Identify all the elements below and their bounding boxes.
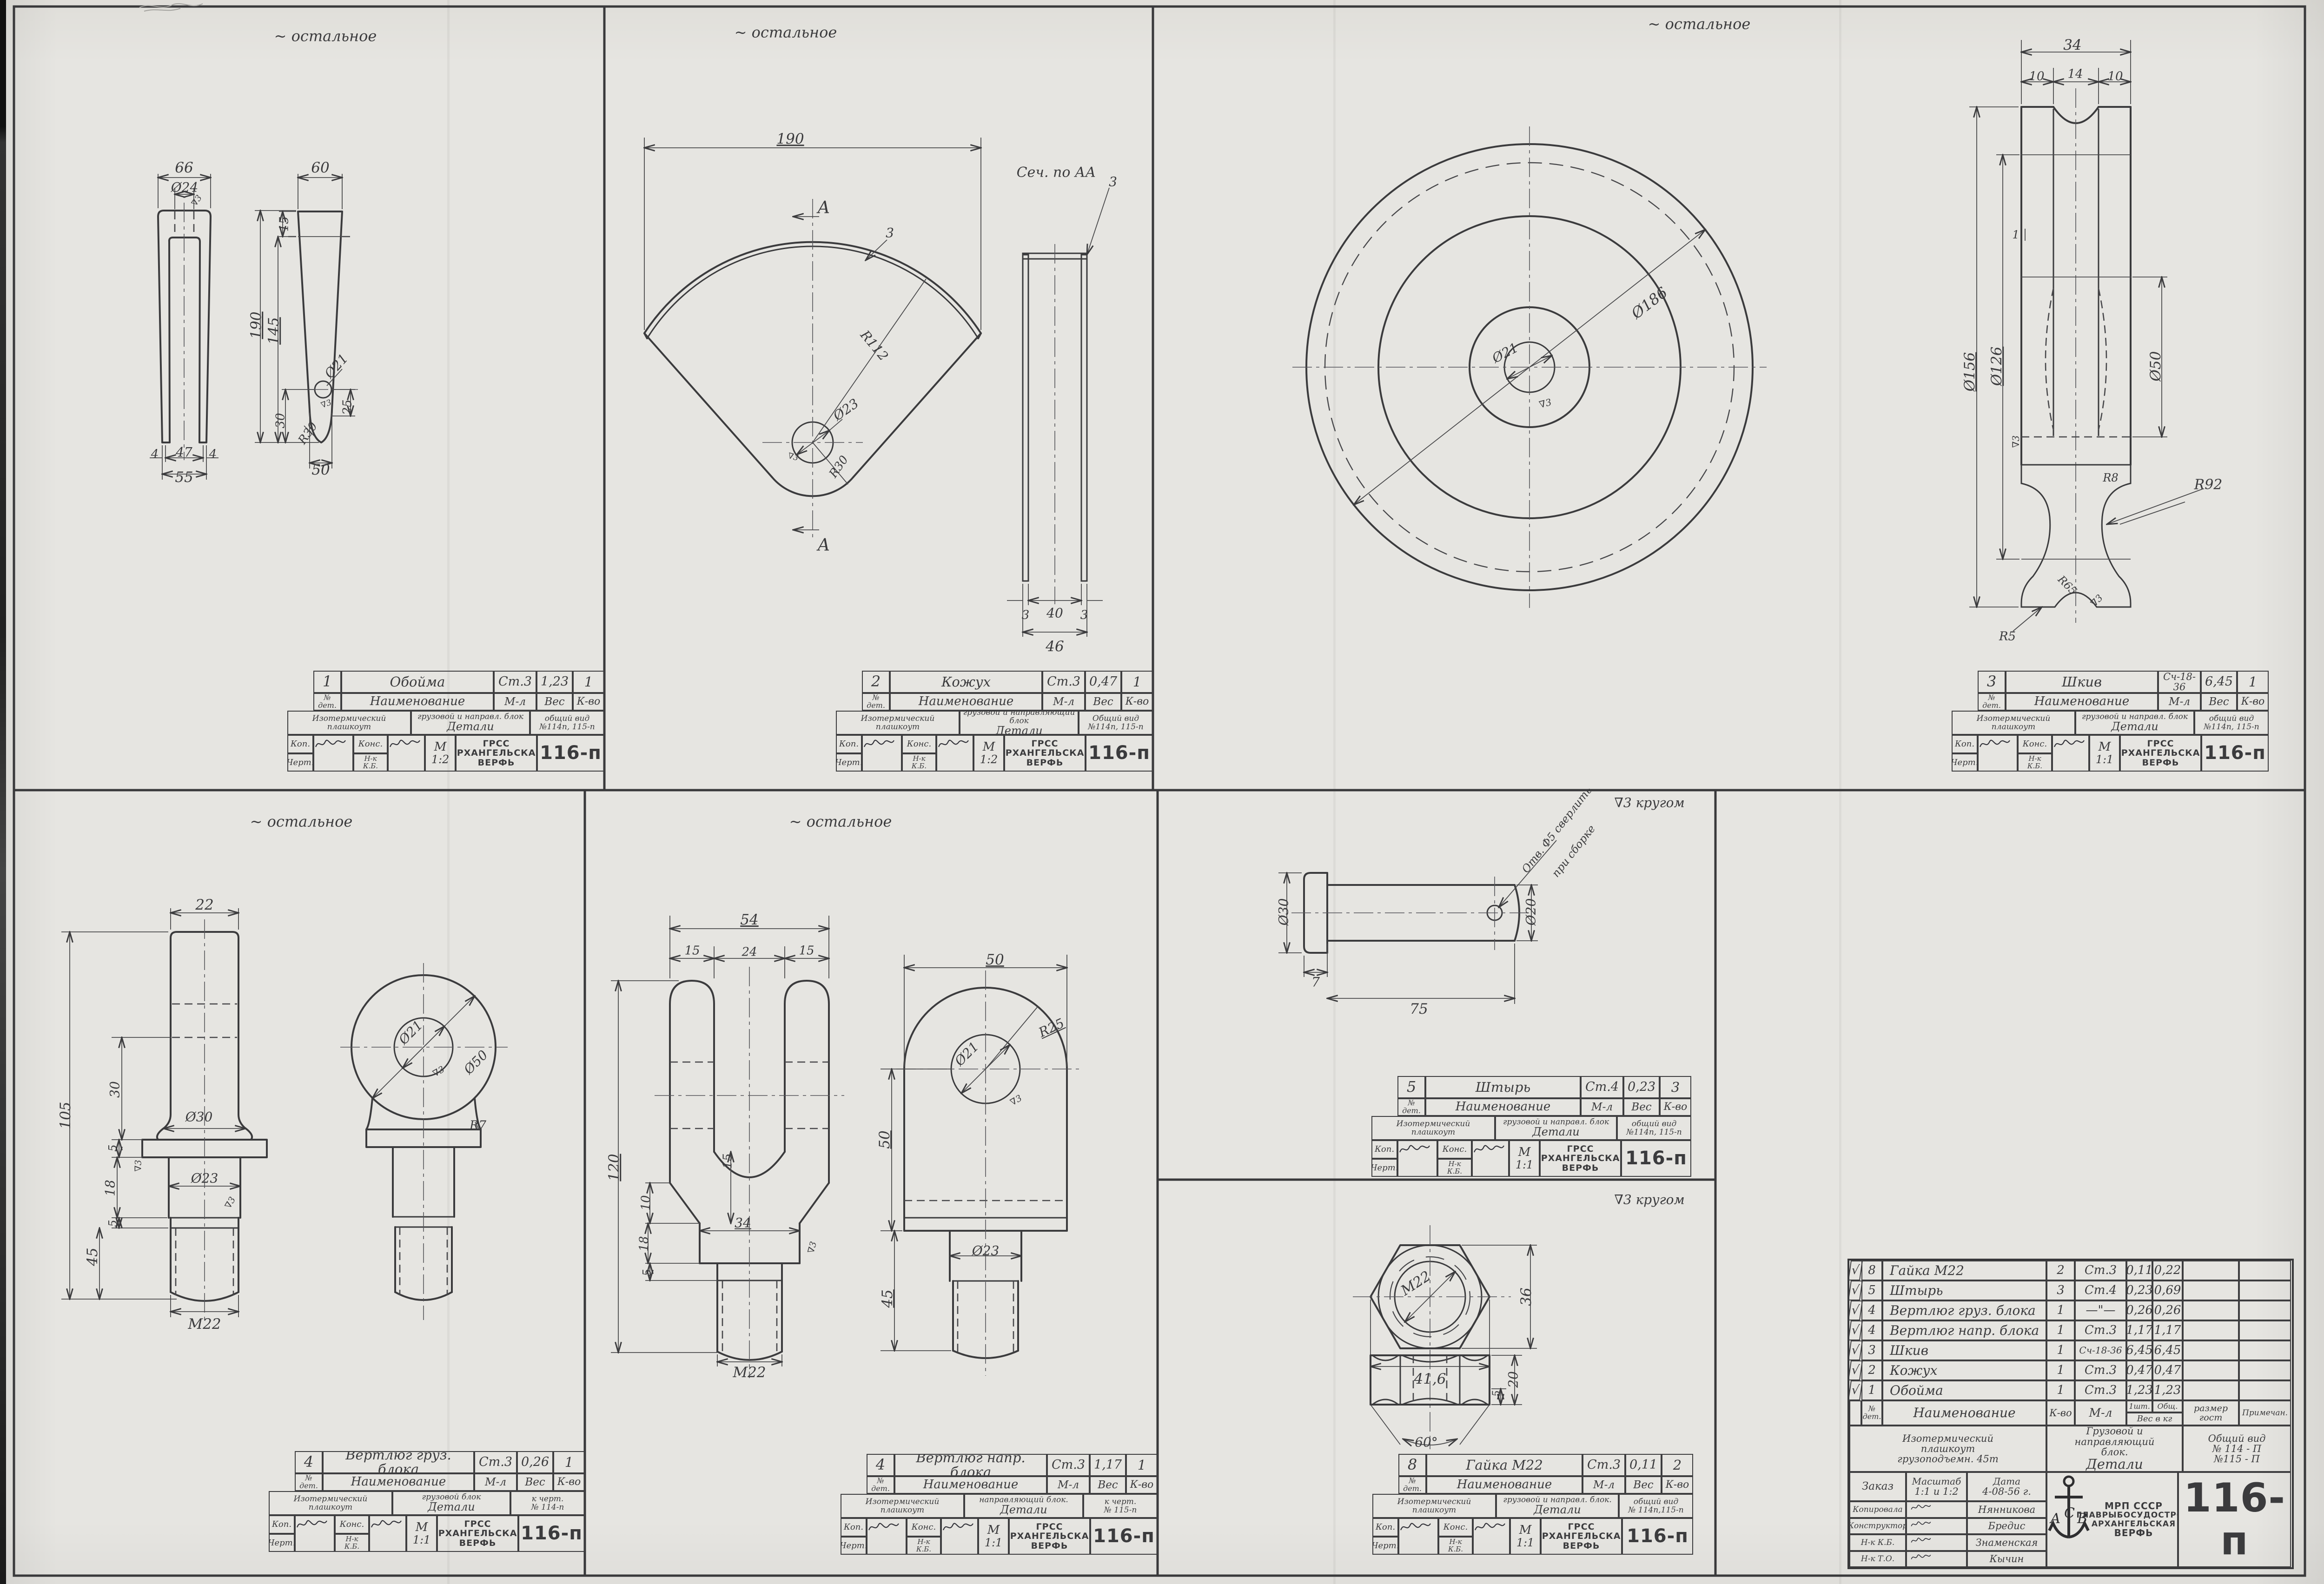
- header-gost: размер гост: [2183, 1400, 2239, 1426]
- col-header-name: Наименование: [890, 693, 1042, 711]
- part-name: Обойма: [341, 671, 494, 693]
- dim-label: 34: [2063, 38, 2081, 53]
- col-header-material: М-л: [474, 1473, 517, 1491]
- assembly-name: грузовой и направл. блокДетали: [2075, 711, 2194, 735]
- org-line: ВЕРФЬ: [478, 758, 515, 767]
- dim-label: 45: [881, 1289, 895, 1307]
- part-name: Штырь: [1425, 1076, 1581, 1098]
- reference-drawing: к черт. № 115-п: [1083, 1494, 1158, 1518]
- scale-cell: Масштаб1:1 и 1:2: [1906, 1472, 1967, 1501]
- row-weight-one: 6,45: [2126, 1340, 2152, 1360]
- project-line: грузоподъемн. 45т: [1897, 1454, 1998, 1464]
- kop-label: Коп.: [1372, 1518, 1398, 1537]
- dim-label: 30: [275, 413, 287, 428]
- scale-letter: М: [983, 741, 995, 754]
- col-header-weight: Вес: [2201, 693, 2237, 711]
- quantity: 1: [1126, 1454, 1158, 1476]
- col-header-num: № дет.: [862, 693, 890, 711]
- part-number: 3: [1978, 671, 2006, 693]
- row-gost: [2183, 1320, 2239, 1340]
- scale-value: 1:1: [1516, 1159, 1534, 1171]
- signature: [937, 736, 970, 752]
- dim-label: 18: [638, 1236, 651, 1251]
- nk-kb-label: Н-к К.Б.: [907, 1537, 941, 1555]
- scale-cell: М1:1: [978, 1518, 1009, 1555]
- dim-label: ~ остальное: [735, 25, 837, 40]
- date-cell: Дата4-08-56 г.: [1967, 1472, 2046, 1501]
- col-header-num: № дет.: [1397, 1098, 1425, 1116]
- row-name: Обойма: [1882, 1380, 2046, 1400]
- col-header-weight: Вес: [1623, 1098, 1660, 1116]
- row-weight-one: 1,23: [2126, 1380, 2152, 1400]
- header-weight-total: Общ.: [2152, 1400, 2183, 1412]
- signature: [389, 736, 421, 752]
- part-number: 4: [867, 1454, 894, 1476]
- header-note: Примечан.: [2239, 1400, 2291, 1426]
- row-weight-total: 0,69: [2152, 1280, 2183, 1300]
- dim-label: 1: [2012, 229, 2019, 240]
- nk-kb-label: Н-к К.Б.: [1438, 1537, 1473, 1555]
- dim-label: 7: [1311, 976, 1320, 990]
- dim-label: 10: [2029, 71, 2044, 83]
- shipyard-logo: АСВ: [2046, 1483, 2077, 1557]
- detali-label: Детали: [1000, 1504, 1047, 1516]
- dim-label: ~ остальное: [1648, 17, 1751, 32]
- check-mark: √: [1848, 1360, 1863, 1380]
- part-number: 5: [1397, 1076, 1425, 1098]
- col-header-name: Наименование: [1425, 1098, 1581, 1116]
- dim-label: 3: [1080, 609, 1088, 622]
- signature-cell: [313, 735, 353, 772]
- signature: [1907, 1552, 1935, 1562]
- dim-label: R7: [470, 1120, 486, 1132]
- col-header-qty: К-во: [1121, 693, 1153, 711]
- scale-value: 1:1: [413, 1534, 431, 1546]
- signature: [296, 1516, 328, 1532]
- col-header-qty: К-во: [1662, 1476, 1693, 1494]
- material: Ст.3: [474, 1451, 517, 1473]
- row-qty: 1: [2046, 1360, 2075, 1380]
- title-block-1: 1ОбоймаСт.31,231№ дет.НаименованиеМ-лВес…: [287, 671, 604, 772]
- signature: [1907, 1535, 1935, 1545]
- assembly-name: грузовой и направл. блок.Детали: [1496, 1494, 1619, 1518]
- assembly-line: Грузовой и направляющий: [2047, 1426, 2182, 1447]
- detali-label: Детали: [2086, 1457, 2143, 1472]
- row-num: 4: [1861, 1300, 1882, 1320]
- col-header-name: Наименование: [1426, 1476, 1582, 1494]
- row-weight-total: 0,26: [2152, 1300, 2183, 1320]
- scale-cell: М1:1: [1509, 1140, 1540, 1177]
- dim-label: Сеч. по АА: [1017, 166, 1096, 180]
- scale-letter: М: [434, 741, 447, 754]
- part-number: 1: [313, 671, 341, 693]
- col-header-name: Наименование: [2006, 693, 2158, 711]
- material: Ст.3: [494, 671, 536, 693]
- row-material: Ст.3: [2075, 1261, 2126, 1280]
- check-mark: √: [1848, 1340, 1863, 1360]
- assembly-line: блок.: [2101, 1447, 2128, 1457]
- header-name: Наименование: [1882, 1400, 2046, 1426]
- sheet-number: 116-п: [1622, 1518, 1693, 1555]
- org-cell: ГРССАРХАНГЕЛЬСКАЯВЕРФЬ: [437, 1515, 518, 1552]
- signature: [867, 1519, 900, 1535]
- row-gost: [2183, 1300, 2239, 1320]
- person-name: Знаменская: [1967, 1534, 2046, 1551]
- row-qty: 1: [2046, 1380, 2075, 1400]
- kons-label: Конс.: [1438, 1518, 1473, 1537]
- detali-label: Детали: [447, 721, 494, 733]
- kop-label: Коп.: [1952, 735, 1978, 753]
- org-line: АРХАНГЕЛЬСКАЯ: [2120, 748, 2201, 758]
- material: Ст.3: [1047, 1454, 1090, 1476]
- kons-label: Конс.: [1437, 1140, 1472, 1159]
- part-name: Вертлюг напр. блока: [894, 1454, 1047, 1476]
- org-cell: ГРССАРХАНГЕЛЬСКАЯВЕРФЬ: [2120, 735, 2201, 772]
- sheet-number: 116-п: [518, 1515, 585, 1552]
- project-name: Изотермический плашкоут: [841, 1494, 964, 1518]
- project-name: Изотермический плашкоут: [287, 711, 411, 735]
- row-material: Ст.3: [2075, 1380, 2126, 1400]
- col-header-name: Наименование: [894, 1476, 1047, 1494]
- dim-label: 45: [86, 1247, 100, 1266]
- row-note: [2239, 1340, 2291, 1360]
- assembly-line: грузовой и направляющий блок: [960, 711, 1078, 725]
- dim-label: 15: [722, 1153, 735, 1168]
- project-name: Изотермический плашкоут: [1372, 1494, 1496, 1518]
- row-qty: 1: [2046, 1340, 2075, 1360]
- scale-letter: М: [1519, 1524, 1532, 1537]
- weight: 0,26: [517, 1451, 553, 1473]
- dim-label: 15: [799, 945, 814, 957]
- row-weight-one: 1,17: [2126, 1320, 2152, 1340]
- project-name: Изотермический плашкоут: [1952, 711, 2075, 735]
- logo-cell: АСВМРП СССРГЛАВРЫБОСУДОСТРОЙАРХАНГЕЛЬСКА…: [2046, 1472, 2178, 1567]
- detali-label: Детали: [1532, 1126, 1580, 1138]
- assembly-name: направляющий блок.Детали: [964, 1494, 1083, 1518]
- reference-drawing: общий вид №114п, 115-п: [530, 711, 604, 735]
- dim-label: 15: [684, 945, 700, 957]
- row-gost: [2183, 1280, 2239, 1300]
- anchor-icon: АСВ: [2047, 1473, 2090, 1547]
- row-note: [2239, 1261, 2291, 1280]
- scale-cell: М1:2: [973, 735, 1004, 772]
- material: Сч-18-36: [2158, 671, 2201, 693]
- chert-label: Черт.: [287, 753, 313, 772]
- project-line: плашкоут: [1921, 1444, 1975, 1454]
- col-header-qty: К-во: [1660, 1098, 1691, 1116]
- scale-value: 1:1: [1516, 1537, 1535, 1549]
- org-cell: ГРССАРХАНГЕЛЬСКАЯВЕРФЬ: [1009, 1518, 1090, 1555]
- col-header-weight: Вес: [517, 1473, 553, 1491]
- chert-label: Черт.: [841, 1537, 867, 1555]
- dim-label: 41,6: [1414, 1372, 1446, 1387]
- header-check: [1849, 1400, 1861, 1426]
- kop-label: Коп.: [1371, 1140, 1397, 1159]
- date-label: Дата: [1993, 1477, 2020, 1486]
- col-header-name: Наименование: [323, 1473, 474, 1491]
- scale-value: 1:2: [980, 754, 998, 766]
- row-name: Вертлюг груз. блока: [1882, 1300, 2046, 1320]
- signature-cell: [1473, 1518, 1510, 1555]
- dim-label: 18: [104, 1180, 118, 1196]
- dim-label: 50: [878, 1130, 893, 1148]
- signature-cell: [369, 1515, 406, 1552]
- signature: [1979, 736, 2011, 752]
- row-qty: 2: [2046, 1261, 2075, 1280]
- drawing-kozhukh: [644, 138, 1109, 637]
- reference-drawing: общий вид №114п, 115-п: [2194, 711, 2269, 735]
- dim-label: ∇3: [134, 1160, 143, 1171]
- dim-label: А: [817, 537, 830, 554]
- col-header-num: № дет.: [1398, 1476, 1426, 1494]
- weight: 0,47: [1085, 671, 1121, 693]
- signature: [1473, 1141, 1505, 1157]
- part-name: Вертлюг груз. блока: [323, 1451, 474, 1473]
- org-line: ГРСС: [1036, 1522, 1063, 1531]
- col-header-material: М-л: [1581, 1098, 1623, 1116]
- weight: 1,23: [536, 671, 573, 693]
- dim-label: 22: [195, 898, 213, 913]
- dim-label: R8: [2103, 472, 2118, 483]
- quantity: 1: [573, 671, 604, 693]
- part-name: Шкив: [2006, 671, 2158, 693]
- drawing-vertlyug-gruz: [61, 908, 508, 1321]
- kons-label: Конс.: [902, 735, 936, 753]
- reference-drawing: к черт. № 114-п: [510, 1491, 585, 1515]
- project-line: Изотермический: [1902, 1433, 1993, 1444]
- check-mark: √: [1848, 1261, 1863, 1280]
- detali-label: Детали: [1534, 1504, 1581, 1516]
- signature-cell: [388, 735, 425, 772]
- dim-label: 14: [2067, 68, 2083, 81]
- col-header-weight: Вес: [1625, 1476, 1662, 1494]
- person-name: Бредис: [1967, 1518, 2046, 1535]
- dim-label: ∇3 кругом: [1614, 1194, 1684, 1207]
- dim-label: 46: [1046, 640, 1064, 654]
- signature: [1398, 1141, 1431, 1157]
- col-header-num: № дет.: [313, 693, 341, 711]
- org-line: АРХАНГЕЛЬСКАЯ: [456, 748, 537, 758]
- scale-cell: М1:1: [1510, 1518, 1541, 1555]
- row-gost: [2183, 1380, 2239, 1400]
- dim-label: 120: [607, 1154, 622, 1181]
- nk-kb-label: Н-к К.Б.: [353, 753, 388, 772]
- sheet-number: 116-п: [2201, 735, 2269, 772]
- assembly-cell: Грузовой и направляющийблок.Детали: [2046, 1426, 2183, 1472]
- dim-label: R92: [2194, 478, 2223, 493]
- title-block-4: 4Вертлюг груз. блокаСт.30,261№ дет.Наиме…: [269, 1451, 585, 1552]
- project-name: Изотермический плашкоут: [836, 711, 960, 735]
- dim-label: М22: [188, 1317, 221, 1332]
- reference-line: Общий вид: [2208, 1433, 2266, 1444]
- signature-cell: [1906, 1551, 1967, 1568]
- reference-drawing: общий вид № 114п,115-п: [1619, 1494, 1693, 1518]
- header-material: М-л: [2075, 1400, 2126, 1426]
- row-qty: 1: [2046, 1300, 2075, 1320]
- drawing-gaika: [1353, 1225, 1537, 1449]
- org-line: ВЕРФЬ: [1026, 758, 1064, 767]
- row-num: 4: [1861, 1320, 1882, 1340]
- nk-kb-label: Н-к К.Б.: [335, 1534, 369, 1552]
- reference-cell: Общий вид№ 114 - П№115 - П: [2183, 1426, 2291, 1472]
- row-material: —"—: [2075, 1300, 2126, 1320]
- dim-label: 50: [311, 463, 330, 478]
- row-num: 3: [1861, 1340, 1882, 1360]
- row-weight-total: 1,17: [2152, 1320, 2183, 1340]
- signature: [1399, 1519, 1432, 1535]
- row-weight-one: 0,47: [2126, 1360, 2152, 1380]
- signature-cell: [936, 735, 973, 772]
- dim-label: 3: [1022, 609, 1030, 622]
- signature-cell: [1978, 735, 2018, 772]
- org-line: ВЕРФЬ: [1031, 1541, 1068, 1551]
- assembly-name: грузовой и направл. блокДетали: [1495, 1116, 1617, 1140]
- header-qty: К-во: [2046, 1400, 2075, 1426]
- row-weight-one: 0,23: [2126, 1280, 2152, 1300]
- signature-cell: [941, 1518, 978, 1555]
- dim-label: 10: [2107, 71, 2123, 83]
- dim-label: Ø23: [191, 1172, 218, 1186]
- org-line: ГРСС: [1568, 1522, 1595, 1531]
- signature-cell: [862, 735, 902, 772]
- dim-label: 15: [278, 216, 291, 231]
- drawing-vertlyug-napr: [611, 916, 1083, 1378]
- role-label: Н-к Т.О.: [1849, 1551, 1906, 1568]
- project-name: Изотермический плашкоут: [269, 1491, 392, 1515]
- col-header-weight: Вес: [1090, 1476, 1126, 1494]
- kons-label: Конс.: [335, 1515, 369, 1534]
- svg-text:С: С: [2064, 1505, 2075, 1521]
- signature-cell: [2052, 735, 2089, 772]
- dim-label: ~ остальное: [274, 29, 377, 44]
- row-weight-total: 1,23: [2152, 1380, 2183, 1400]
- col-header-material: М-л: [2158, 693, 2201, 711]
- scale-letter: М: [987, 1524, 1000, 1537]
- signature: [1907, 1502, 1935, 1512]
- scale-letter: М: [1518, 1146, 1531, 1159]
- dim-label: 145: [267, 317, 282, 344]
- chert-label: Черт.: [836, 753, 862, 772]
- signature: [942, 1519, 974, 1535]
- signature-cell: [1906, 1518, 1967, 1535]
- weight: 1,17: [1090, 1454, 1126, 1476]
- signature: [1907, 1519, 1935, 1529]
- quantity: 1: [2237, 671, 2269, 693]
- material: Ст.3: [1042, 671, 1085, 693]
- signature-cell: [1397, 1140, 1437, 1177]
- kop-label: Коп.: [287, 735, 313, 753]
- col-header-qty: К-во: [1126, 1476, 1158, 1494]
- row-num: 1: [1861, 1380, 1882, 1400]
- quantity: 1: [553, 1451, 585, 1473]
- row-note: [2239, 1360, 2291, 1380]
- org-text: МРП СССРГЛАВРЫБОСУДОСТРОЙАРХАНГЕЛЬСКАЯВЕ…: [2077, 1501, 2178, 1538]
- row-qty: 1: [2046, 1320, 2075, 1340]
- dim-label: 190: [249, 311, 264, 339]
- svg-text:В: В: [2077, 1511, 2087, 1527]
- org-line: ВЕРФЬ: [2142, 758, 2179, 767]
- row-weight-total: 0,22: [2152, 1261, 2183, 1280]
- dim-label: 66: [175, 161, 193, 176]
- weight: 6,45: [2201, 671, 2237, 693]
- signature-cell: [1906, 1534, 1967, 1551]
- dim-label: 54: [740, 913, 758, 928]
- scale-letter: М: [416, 1521, 428, 1534]
- part-name: Гайка М22: [1426, 1454, 1582, 1476]
- title-block-5: 5ШтырьСт.40,233№ дет.НаименованиеМ-лВесК…: [1371, 1076, 1691, 1177]
- check-mark: √: [1848, 1380, 1863, 1400]
- material: Ст.4: [1581, 1076, 1623, 1098]
- weight: 0,11: [1625, 1454, 1662, 1476]
- quantity: 2: [1662, 1454, 1693, 1476]
- title-block-3: 3ШкивСч-18-366,451№ дет.НаименованиеМ-лВ…: [1952, 671, 2269, 772]
- kop-label: Коп.: [269, 1515, 295, 1534]
- signature-cell: [867, 1518, 907, 1555]
- dim-label: 25: [342, 399, 354, 415]
- row-material: Ст.3: [2075, 1360, 2126, 1380]
- scale-value: 1:2: [431, 754, 450, 766]
- sheet-number-big: 116-п: [2178, 1472, 2291, 1567]
- dim-label: 4: [209, 449, 217, 461]
- org-line: ГРСС: [1032, 739, 1059, 748]
- org-line: ГРСС: [464, 1519, 491, 1529]
- signature: [314, 736, 347, 752]
- dim-label: ~ остальное: [250, 814, 353, 830]
- part-number: 8: [1398, 1454, 1426, 1476]
- row-num: 5: [1861, 1280, 1882, 1300]
- sheet-number: 116-п: [537, 735, 604, 772]
- signature: [1474, 1519, 1506, 1535]
- detali-label: Детали: [428, 1501, 475, 1513]
- assembly-name: грузовой блокДетали: [392, 1491, 510, 1515]
- scale-value: 1:1: [985, 1537, 1003, 1549]
- col-header-qty: К-во: [2237, 693, 2269, 711]
- dim-label: 50: [986, 953, 1004, 968]
- reference-drawing: общий вид №114п, 115-п: [1617, 1116, 1691, 1140]
- quantity: 3: [1660, 1076, 1691, 1098]
- drawing-shtyr: [1278, 840, 1556, 1004]
- row-weight-one: 0,26: [2126, 1300, 2152, 1320]
- dim-label: 20: [1507, 1371, 1521, 1388]
- signature-cell: [1398, 1518, 1438, 1555]
- drawing-sheet: ~ остальное~ остальное~ остальное~ остал…: [0, 0, 2324, 1584]
- title-block-4: 4Вертлюг напр. блокаСт.31,171№ дет.Наиме…: [841, 1454, 1158, 1555]
- col-header-material: М-л: [1047, 1476, 1090, 1494]
- material: Ст.3: [1582, 1454, 1625, 1476]
- parts-list-block: √8Гайка М222Ст.30,110,22√5Штырь3Ст.40,23…: [1849, 1261, 2292, 1567]
- org-cell: ГРССАРХАНГЕЛЬСКАЯВЕРФЬ: [1541, 1518, 1622, 1555]
- row-material: Ст.3: [2075, 1320, 2126, 1340]
- row-material: Ст.4: [2075, 1280, 2126, 1300]
- drawing-shkiv: [1292, 40, 2203, 631]
- col-header-num: № дет.: [295, 1473, 323, 1491]
- part-number: 2: [862, 671, 890, 693]
- org-line: АРХАНГЕЛЬСКАЯ: [1004, 748, 1086, 758]
- org-line: АРХАНГЕЛЬСКАЯ: [2092, 1520, 2176, 1528]
- org-line: ГРСС: [2147, 739, 2174, 748]
- role-label: Н-к К.Б.: [1849, 1534, 1906, 1551]
- col-header-num: № дет.: [1978, 693, 2006, 711]
- dim-label: Ø50: [2149, 351, 2164, 382]
- row-note: [2239, 1300, 2291, 1320]
- svg-text:А: А: [2049, 1511, 2061, 1527]
- dim-label: R5: [1999, 631, 2016, 643]
- chert-label: Черт.: [1372, 1537, 1398, 1555]
- row-qty: 3: [2046, 1280, 2075, 1300]
- dim-label: Ø30: [1278, 898, 1291, 926]
- chert-label: Черт.: [269, 1534, 295, 1552]
- signature-cell: [1472, 1140, 1509, 1177]
